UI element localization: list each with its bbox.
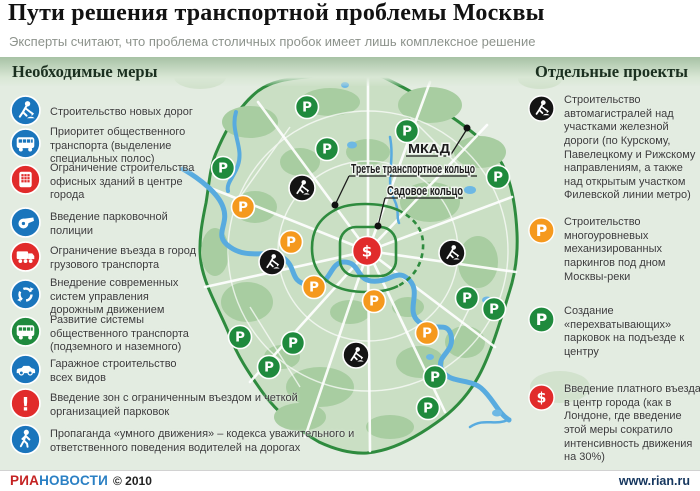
measure-item: Приоритет общественного транспорта (выде…: [10, 126, 202, 167]
measure-text: Ограничение строительства офисных зданий…: [50, 162, 202, 203]
marker-roadworks: [439, 240, 465, 266]
project-item: PСтроительство многоуровневых механизиро…: [528, 216, 700, 284]
measure-text: Пропаганда «умного движения» – кодекса у…: [50, 428, 362, 455]
bus-icon: [10, 316, 41, 347]
section-header-band: Необходимые меры Отдельные проекты: [0, 57, 700, 86]
marker-parking-green: P: [296, 96, 319, 119]
brand-ria: РИА: [10, 473, 39, 488]
site-url: www.rian.ru: [619, 474, 690, 488]
marker-parking-green: P: [396, 120, 419, 143]
marker-parking-green: P: [487, 166, 510, 189]
measure-text: Введение парковочной полиции: [50, 211, 202, 238]
building-icon: [10, 164, 41, 195]
measure-item: Внедрение современных систем управления …: [10, 277, 202, 318]
project-item: $Введение платного въезда в центр города…: [528, 383, 700, 465]
project-item: PСоздание «перехватывающих» парковок на …: [528, 305, 700, 360]
svg-text:P: P: [462, 292, 472, 307]
project-text: Введение платного въезда в центр города …: [564, 383, 700, 465]
project-text: Строительство многоуровневых механизиров…: [564, 216, 700, 284]
marker-parking-orange: P: [232, 196, 255, 219]
brand-novosti: НОВОСТИ: [39, 473, 108, 488]
car-icon: [10, 354, 41, 385]
measure-text: Приоритет общественного транспорта (выде…: [50, 126, 202, 167]
marker-parking-green: P: [456, 287, 479, 310]
svg-text:P: P: [264, 361, 274, 376]
project-item: Строительство автомагистралей над участк…: [528, 94, 700, 203]
third-ring-label: Третье транспортное кольцо: [351, 162, 475, 176]
project-text: Создание «перехватывающих» парковок на п…: [564, 305, 700, 360]
svg-text:P: P: [322, 143, 332, 158]
measure-item: Введение парковочной полиции: [10, 207, 202, 243]
garden-ring-label: Садовое кольцо: [387, 184, 463, 198]
measure-item: !Введение зон с ограниченным въездом и ч…: [10, 388, 306, 424]
subtitle: Эксперты считают, что проблема столичных…: [9, 34, 535, 49]
project-text: Строительство автомагистралей над участк…: [564, 94, 700, 203]
marker-parking-green: P: [229, 326, 252, 349]
right-section-header: Отдельные проекты: [535, 62, 688, 82]
svg-text:P: P: [402, 125, 412, 140]
brand-logo: РИАНОВОСТИ© 2010: [10, 472, 152, 490]
bus-icon: [10, 128, 41, 159]
marker-toll: $: [353, 237, 382, 266]
marker-parking-green: P: [282, 332, 305, 355]
whistle-icon: [10, 207, 41, 238]
svg-text:P: P: [302, 101, 312, 116]
svg-text:P: P: [536, 310, 548, 329]
measure-item: Пропаганда «умного движения» – кодекса у…: [10, 424, 362, 460]
roadworks-icon: [528, 95, 555, 122]
roadworks-icon: [10, 95, 41, 126]
measure-item: Ограничение въезда в город грузового тра…: [10, 241, 202, 277]
marker-roadworks: [343, 342, 369, 368]
marker-roadworks: [259, 249, 285, 275]
measure-text: Внедрение современных систем управления …: [50, 277, 202, 318]
exclaim-icon: !: [10, 388, 41, 419]
svg-text:$: $: [537, 390, 547, 406]
toll-icon: $: [528, 384, 555, 411]
marker-parking-green: P: [212, 157, 235, 180]
marker-parking-green: P: [258, 356, 281, 379]
svg-text:P: P: [238, 201, 248, 216]
infographic-root: Пути решения транспортной проблемы Москв…: [0, 0, 700, 491]
svg-text:P: P: [369, 295, 379, 310]
copyright: © 2010: [113, 474, 152, 488]
left-section-header: Необходимые меры: [12, 62, 157, 82]
measure-text: Ограничение въезда в город грузового тра…: [50, 245, 202, 272]
measure-item: Гаражное строительство всех видов: [10, 354, 202, 390]
measure-text: Введение зон с ограниченным въездом и че…: [50, 392, 306, 419]
measure-text: Развитие системы общественного транспорт…: [50, 314, 202, 355]
marker-parking-green: P: [424, 366, 447, 389]
marker-parking-orange: P: [303, 276, 326, 299]
marker-parking-orange: P: [280, 231, 303, 254]
svg-text:P: P: [286, 236, 296, 251]
svg-text:P: P: [288, 337, 298, 352]
marker-roadworks: [289, 175, 315, 201]
svg-text:P: P: [422, 327, 432, 342]
arrows-icon: [10, 279, 41, 310]
svg-text:P: P: [218, 162, 228, 177]
svg-text:P: P: [536, 221, 548, 240]
svg-text:P: P: [493, 171, 503, 186]
measure-text: Гаражное строительство всех видов: [50, 358, 202, 385]
footer: РИАНОВОСТИ© 2010 www.rian.ru: [0, 470, 700, 491]
marker-parking-green: P: [417, 397, 440, 420]
parking-icon: P: [528, 306, 555, 333]
svg-text:!: !: [21, 395, 29, 416]
marker-parking-green: P: [316, 138, 339, 161]
measure-item: Ограничение строительства офисных зданий…: [10, 162, 202, 203]
marker-parking-orange: P: [416, 322, 439, 345]
page-title: Пути решения транспортной проблемы Москв…: [8, 0, 545, 27]
marker-parking-green: P: [483, 298, 506, 321]
measure-text: Строительство новых дорог: [50, 106, 202, 120]
pedestrian-icon: [10, 424, 41, 455]
measure-item: Развитие системы общественного транспорт…: [10, 314, 202, 355]
svg-text:P: P: [489, 303, 499, 318]
parking-icon: P: [528, 217, 555, 244]
svg-text:P: P: [430, 371, 440, 386]
svg-text:P: P: [309, 281, 319, 296]
marker-parking-orange: P: [363, 290, 386, 313]
svg-text:P: P: [235, 331, 245, 346]
svg-text:P: P: [423, 402, 433, 417]
truck-icon: [10, 241, 41, 272]
svg-text:$: $: [362, 242, 372, 260]
mkad-label: МКАД: [408, 142, 450, 156]
